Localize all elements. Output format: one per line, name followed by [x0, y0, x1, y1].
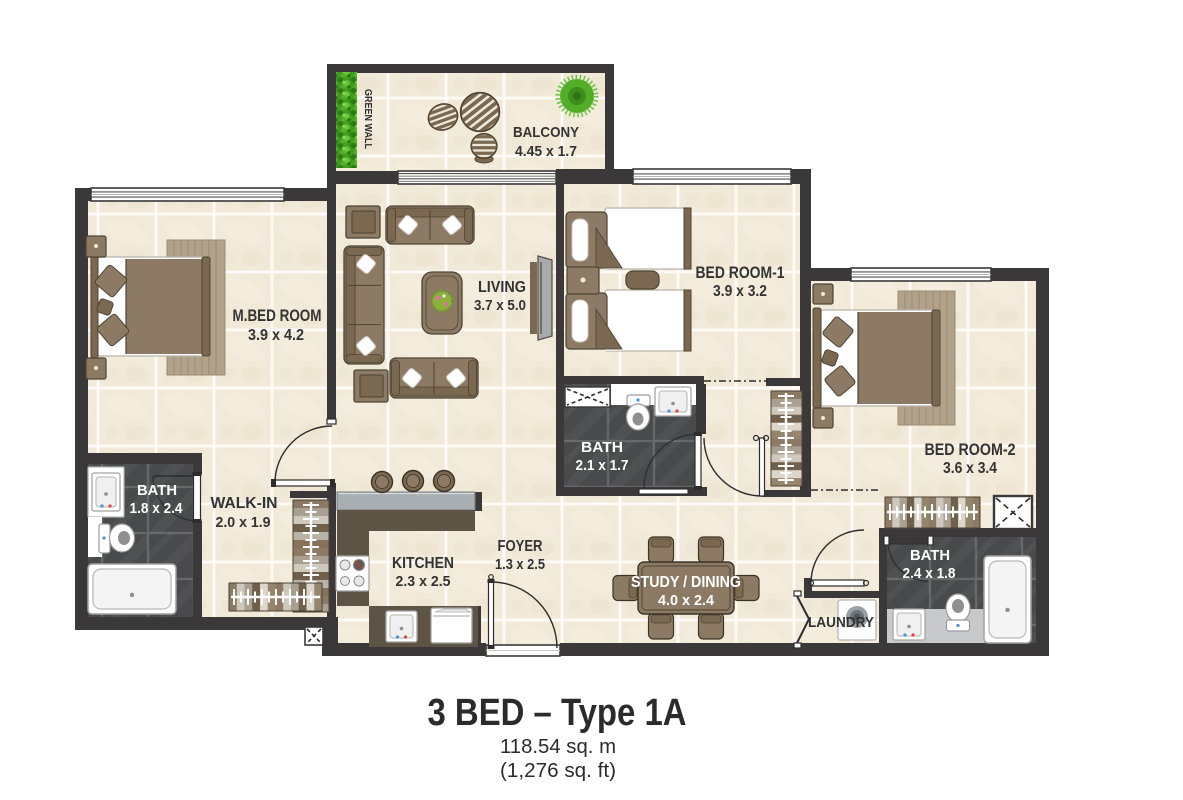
svg-text:WALK-IN: WALK-IN [211, 495, 278, 512]
svg-text:118.54 sq. m: 118.54 sq. m [500, 736, 616, 758]
svg-text:3.9 x 3.2: 3.9 x 3.2 [713, 283, 767, 300]
svg-text:LAUNDRY: LAUNDRY [808, 614, 874, 631]
svg-text:M.BED ROOM: M.BED ROOM [233, 306, 322, 325]
svg-text:3.7 x 5.0: 3.7 x 5.0 [474, 297, 526, 314]
svg-text:1.8 x 2.4: 1.8 x 2.4 [130, 501, 183, 517]
svg-text:BATH: BATH [581, 439, 623, 456]
svg-text:2.4 x 1.8: 2.4 x 1.8 [903, 566, 956, 582]
svg-text:4.45 x 1.7: 4.45 x 1.7 [515, 143, 577, 160]
svg-text:(1,276 sq. ft): (1,276 sq. ft) [500, 760, 616, 782]
svg-text:BED ROOM-2: BED ROOM-2 [925, 440, 1016, 459]
svg-text:STUDY / DINING: STUDY / DINING [631, 574, 741, 591]
svg-text:3.6 x 3.4: 3.6 x 3.4 [943, 460, 997, 477]
svg-text:FOYER: FOYER [498, 538, 543, 555]
svg-text:LIVING: LIVING [478, 279, 526, 296]
svg-text:1.3 x 2.5: 1.3 x 2.5 [495, 556, 545, 573]
svg-text:BATH: BATH [137, 482, 177, 499]
svg-text:3.9 x 4.2: 3.9 x 4.2 [248, 327, 304, 344]
svg-text:2.1 x 1.7: 2.1 x 1.7 [576, 458, 629, 474]
svg-text:GREEN WALL: GREEN WALL [362, 89, 373, 149]
svg-text:BATH: BATH [910, 547, 950, 564]
svg-text:BED ROOM-1: BED ROOM-1 [696, 263, 785, 282]
svg-text:3 BED – Type 1A: 3 BED – Type 1A [428, 692, 687, 734]
svg-text:BALCONY: BALCONY [513, 124, 579, 141]
svg-text:2.0 x 1.9: 2.0 x 1.9 [216, 514, 271, 531]
svg-text:2.3 x 2.5: 2.3 x 2.5 [396, 573, 451, 590]
svg-text:4.0 x 2.4: 4.0 x 2.4 [658, 592, 715, 609]
svg-text:KITCHEN: KITCHEN [392, 555, 454, 572]
